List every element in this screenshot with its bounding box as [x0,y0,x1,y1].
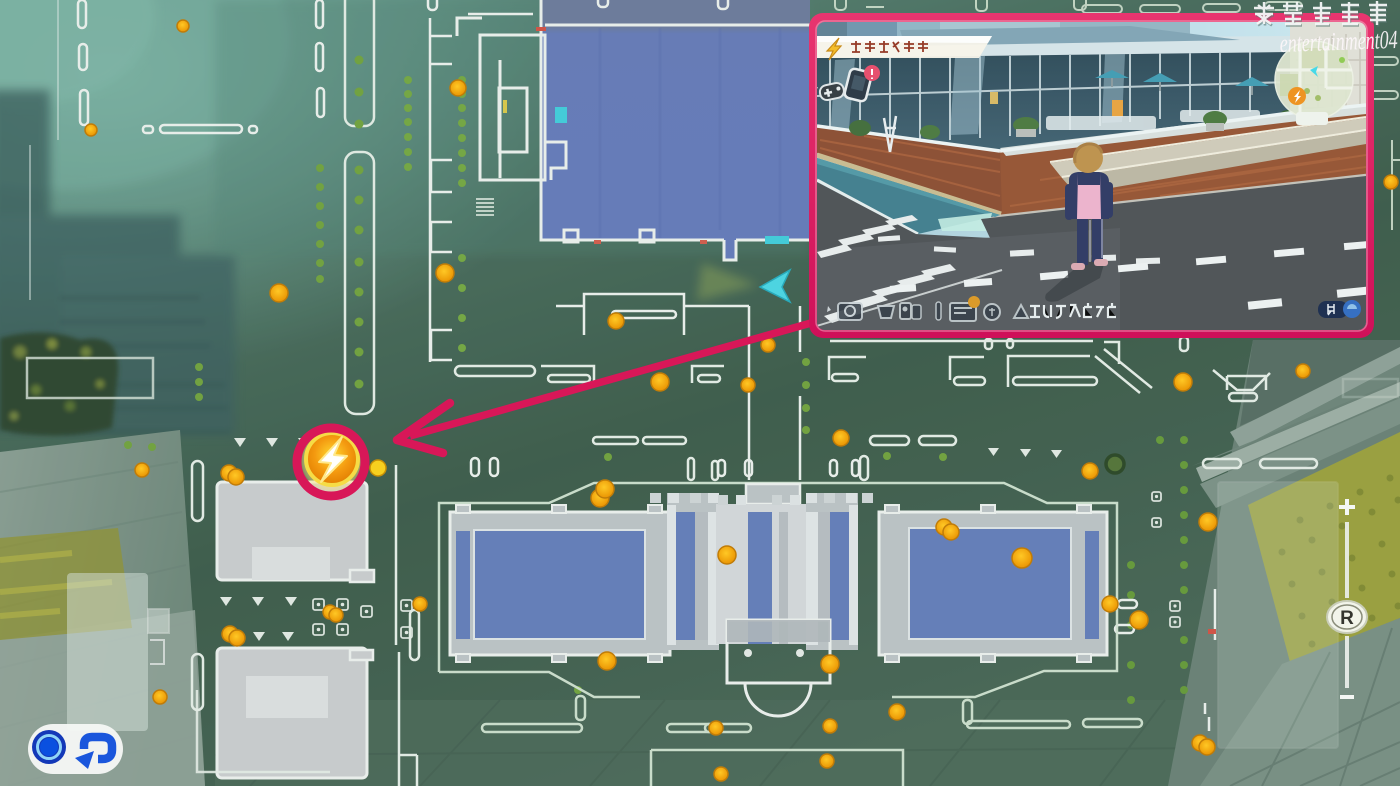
svg-text:entertainment04: entertainment04 [1279,25,1398,58]
svg-text:R: R [1340,608,1354,629]
